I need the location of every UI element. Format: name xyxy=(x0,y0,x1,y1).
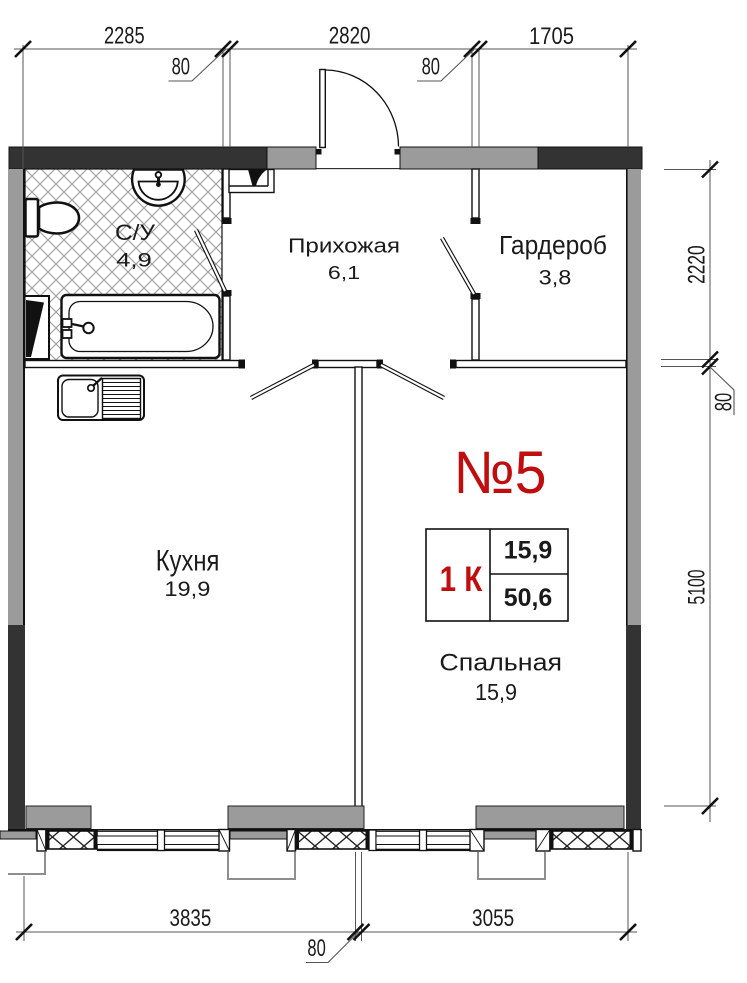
svg-text:80: 80 xyxy=(422,55,440,81)
svg-text:Прихожая: Прихожая xyxy=(288,236,400,258)
svg-text:2220: 2220 xyxy=(685,245,711,284)
svg-text:50,6: 50,6 xyxy=(504,585,553,612)
svg-text:5100: 5100 xyxy=(685,569,711,604)
svg-text:3055: 3055 xyxy=(472,906,514,932)
svg-text:80: 80 xyxy=(307,936,325,962)
svg-text:№5: №5 xyxy=(454,439,547,506)
svg-text:3835: 3835 xyxy=(170,906,212,932)
svg-text:80: 80 xyxy=(712,393,738,411)
svg-text:4,9: 4,9 xyxy=(116,250,152,272)
svg-text:19,9: 19,9 xyxy=(164,578,210,601)
svg-text:2820: 2820 xyxy=(329,24,371,50)
svg-text:6,1: 6,1 xyxy=(328,263,360,283)
svg-text:С/У: С/У xyxy=(115,220,156,245)
svg-text:1705: 1705 xyxy=(529,24,574,50)
svg-text:15,9: 15,9 xyxy=(475,679,517,705)
svg-text:Кухня: Кухня xyxy=(156,545,220,578)
svg-text:1 К: 1 К xyxy=(440,559,483,599)
svg-text:3,8: 3,8 xyxy=(539,266,572,290)
svg-text:Спальная: Спальная xyxy=(439,649,562,676)
svg-text:2285: 2285 xyxy=(104,23,145,49)
svg-text:80: 80 xyxy=(172,55,190,81)
svg-text:Гардероб: Гардероб xyxy=(499,230,607,260)
svg-text:15,9: 15,9 xyxy=(504,538,553,565)
